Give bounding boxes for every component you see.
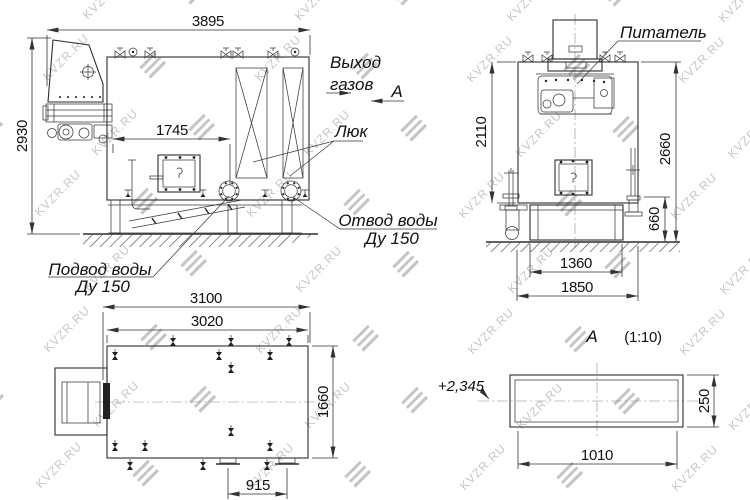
label-view-marker: А — [390, 82, 402, 101]
dim-detail-height: 250 — [696, 389, 713, 413]
water-supply-flange — [219, 181, 239, 201]
label-water-supply-2: Ду 150 — [74, 277, 130, 296]
side-pipe-right — [625, 148, 642, 216]
technical-drawing: 3895 2930 1745 Выход газов А Люк Отвод в… — [0, 0, 750, 500]
label-gas-outlet-2: газов — [330, 75, 373, 94]
boiler-body — [107, 57, 309, 200]
label-hatch: Люк — [334, 122, 368, 141]
side-pipe-left — [503, 168, 519, 210]
dim-plan-flanges: 915 — [246, 477, 270, 494]
fire-door-icon — [150, 155, 200, 192]
dim-plan-overall: 3100 — [190, 290, 222, 307]
label-water-outlet-1: Отвод воды — [338, 211, 438, 230]
bottom-flange-icon — [216, 458, 240, 464]
hopper-icon — [48, 40, 103, 102]
dim-side-base-height: 660 — [646, 207, 663, 231]
hatch-panel — [283, 68, 303, 178]
ground-hatch — [486, 242, 680, 252]
dim-side-base-width: 1360 — [560, 255, 592, 272]
dim-detail-width: 1010 — [581, 447, 613, 464]
water-outlet-flange — [281, 181, 301, 201]
dim-side-body-height: 2110 — [473, 116, 490, 147]
hatch-leader — [253, 141, 363, 176]
drain-pipe — [132, 160, 150, 209]
label-feeder: Питатель — [620, 23, 707, 42]
fire-door-side-icon — [555, 160, 592, 196]
stoker-feeder-icon — [43, 104, 112, 143]
plan-view — [55, 307, 338, 499]
detail-title-letter: А — [585, 327, 597, 346]
dim-front-width: 3895 — [192, 13, 224, 30]
base-frame-side — [500, 205, 623, 240]
dim-side-width: 1850 — [561, 279, 593, 296]
dim-side-total-height: 2660 — [657, 133, 674, 165]
elevation-mark: +2,345 — [438, 378, 485, 395]
label-water-outlet-2: Ду 150 — [363, 229, 419, 248]
dim-front-height: 2930 — [14, 120, 31, 152]
detail-title-scale: (1:10) — [624, 329, 662, 346]
dim-plan-depth: 1660 — [315, 386, 332, 418]
bottom-flange-icon — [275, 458, 299, 464]
ground-hatch — [83, 234, 318, 247]
dim-front-door: 1745 — [156, 122, 188, 139]
label-gas-outlet-1: Выход — [330, 53, 381, 72]
dim-plan-body: 3020 — [191, 313, 223, 330]
hatch-panel — [236, 68, 267, 178]
feeder-plan-icon — [55, 368, 110, 435]
base-frame — [108, 200, 302, 233]
drawing-sheet: KVZR.RUKVZR.RUKVZR.RUKVZR.RUKVZR.RUKVZR.… — [0, 0, 750, 500]
